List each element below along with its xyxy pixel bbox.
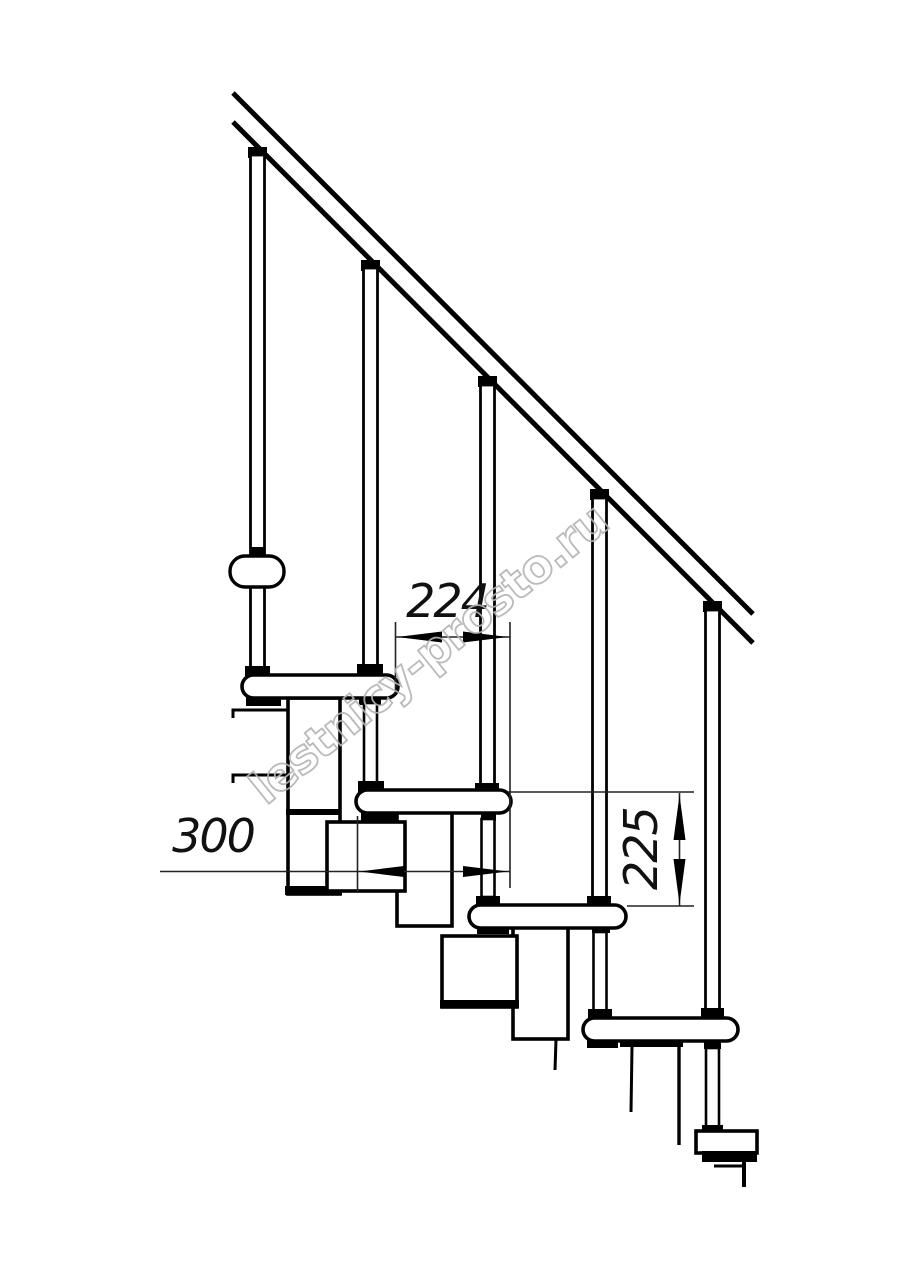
watermark-text: lestnicy-prosto.ru <box>239 493 618 815</box>
staircase-drawing: 224 300 225 lestnicy-prosto.ru <box>0 0 914 1280</box>
tread-3 <box>469 905 626 928</box>
tread-4 <box>583 1018 738 1041</box>
technical-drawing-page: 224 300 225 lestnicy-prosto.ru <box>0 0 914 1280</box>
dim-label-225: 225 <box>614 808 668 890</box>
module-box-3 <box>442 936 517 1007</box>
module-box-2 <box>327 822 405 891</box>
module-under-tread-4 <box>587 1039 683 1145</box>
dim-label-300: 300 <box>172 809 254 863</box>
baluster-4 <box>587 489 612 1019</box>
baluster-1 <box>230 147 284 676</box>
arrow-down-icon <box>674 859 686 904</box>
arrow-up-icon <box>674 795 686 840</box>
baluster-5 <box>701 601 724 1134</box>
module-under-tread-3 <box>440 924 568 1070</box>
tread-2 <box>356 790 511 813</box>
baluster-1-collar <box>230 556 284 587</box>
floor-mount <box>696 1131 757 1187</box>
module-column-3 <box>513 927 568 1039</box>
